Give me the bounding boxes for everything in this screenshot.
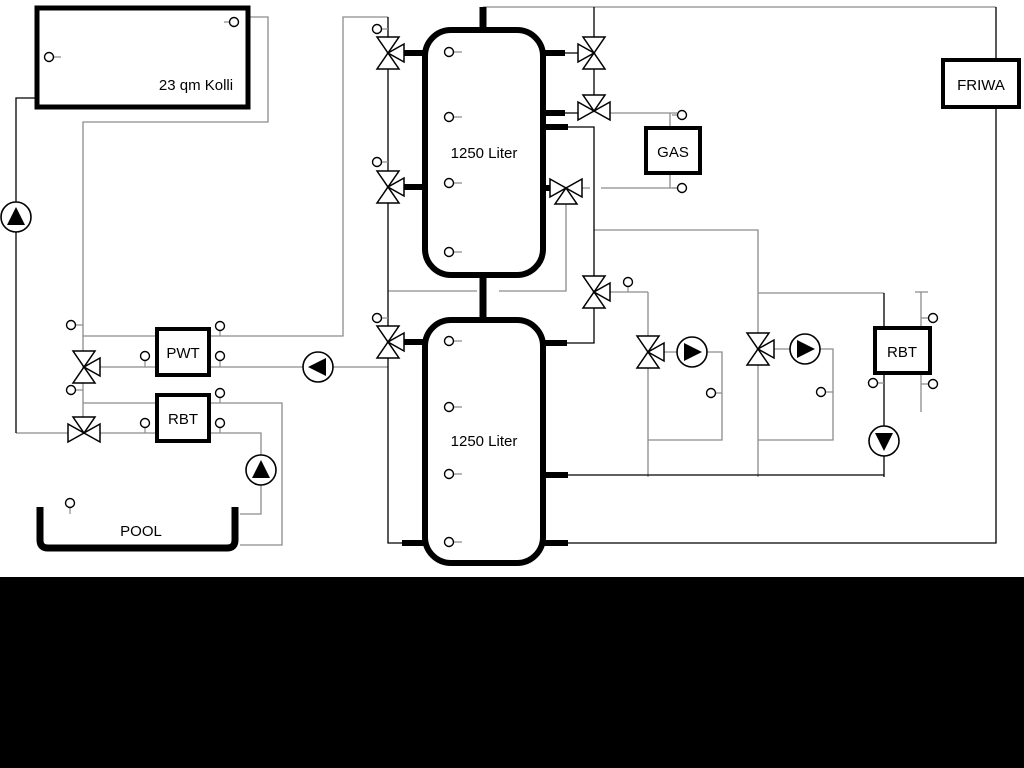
three-way-valve-gas-supply [578, 95, 610, 120]
sensor-rbt-right-top [929, 314, 938, 323]
pipe-tank1-lower-drop [568, 127, 594, 292]
three-way-valve-tank2-left [377, 326, 404, 358]
schematic-page: 23 qm Kolli 1250 Liter 1250 Liter PWT RB… [0, 0, 1024, 768]
sensor-rbt-left-top [216, 389, 225, 398]
sensor-tank1-3 [445, 179, 454, 188]
sensor-tank1-1 [445, 48, 454, 57]
pipe-tank1-valve-links [565, 53, 578, 113]
pipe-gas-supply [610, 113, 677, 128]
three-way-valve-circuit-a [637, 336, 664, 368]
pwt-label: PWT [166, 345, 199, 362]
three-way-valve-gas-return [550, 179, 582, 204]
tank2-label: 1250 Liter [451, 433, 518, 450]
sensor-tank2-4 [445, 538, 454, 547]
sensor-rbt-right-return [869, 379, 878, 388]
sensor-tank2-3 [445, 470, 454, 479]
pump-rbt-right [869, 426, 899, 456]
three-way-valve-tank1-mid-left [377, 171, 404, 203]
collector-label: 23 qm Kolli [159, 77, 233, 94]
tank1-label: 1250 Liter [451, 145, 518, 162]
pipe-friwa-loop [568, 7, 996, 543]
sensor-pwt-riser-bottom [67, 386, 76, 395]
sensor-collector-top [230, 18, 239, 27]
pipe-tank-left-riser [388, 17, 404, 543]
friwa-label: FRIWA [957, 77, 1005, 94]
sensor-tank1-2 [445, 113, 454, 122]
three-way-valve-tank1-top-right [578, 37, 605, 69]
sensor-gas-supply [678, 111, 687, 120]
pipe-gas-return [581, 173, 677, 188]
pump-circuit-a [677, 337, 707, 367]
rbt-right-label: RBT [887, 344, 917, 361]
pipe-rbt-left-bottom [16, 433, 261, 514]
rbt-left-label: RBT [168, 411, 198, 428]
bottom-black-bar [0, 577, 1024, 768]
pool-label: POOL [120, 523, 162, 540]
pipe-circuit-a [648, 292, 722, 477]
sensor-pwt-riser-top [67, 321, 76, 330]
sensor-pwt-top-out [216, 322, 225, 331]
pipe-valve-i-to-tank2 [567, 308, 594, 343]
three-way-valve-circuit-b [747, 333, 774, 365]
pump-pool-loop [246, 455, 276, 485]
gas-label: GAS [657, 144, 689, 161]
sensor-gas-return [678, 184, 687, 193]
sensor-pwt-out [216, 352, 225, 361]
sensor-riser-2 [373, 158, 382, 167]
three-way-valve-rbt-left [68, 417, 100, 442]
pump-circuit-b [790, 334, 820, 364]
three-way-valve-pwt [73, 351, 100, 383]
sensor-tank2-2 [445, 403, 454, 412]
pipe-circuit-b-feed [594, 230, 758, 333]
three-way-valve-tank1-top-left [377, 37, 404, 69]
schematic-canvas: 23 qm Kolli 1250 Liter 1250 Liter PWT RB… [0, 0, 1024, 768]
sensor-riser-3 [373, 314, 382, 323]
pipe-circuit-b [758, 349, 833, 477]
sensor-rbt-left-out [216, 419, 225, 428]
pump-pwt-loop [303, 352, 333, 382]
sensor-pool [66, 499, 75, 508]
sensor-riser-1 [373, 25, 382, 34]
sensor-rbt-right-bottom [929, 380, 938, 389]
sensor-rbt-left-in [141, 419, 150, 428]
sensor-collector-left [45, 53, 54, 62]
sensor-distribution [624, 278, 633, 287]
sensor-tank2-1 [445, 337, 454, 346]
sensor-tank1-4 [445, 248, 454, 257]
pump-solar [1, 202, 31, 232]
sensor-circuit-b [817, 388, 826, 397]
sensor-pwt-in [141, 352, 150, 361]
pipe-solar-return [16, 98, 37, 433]
sensor-circuit-a [707, 389, 716, 398]
three-way-valve-distribution [583, 276, 610, 308]
